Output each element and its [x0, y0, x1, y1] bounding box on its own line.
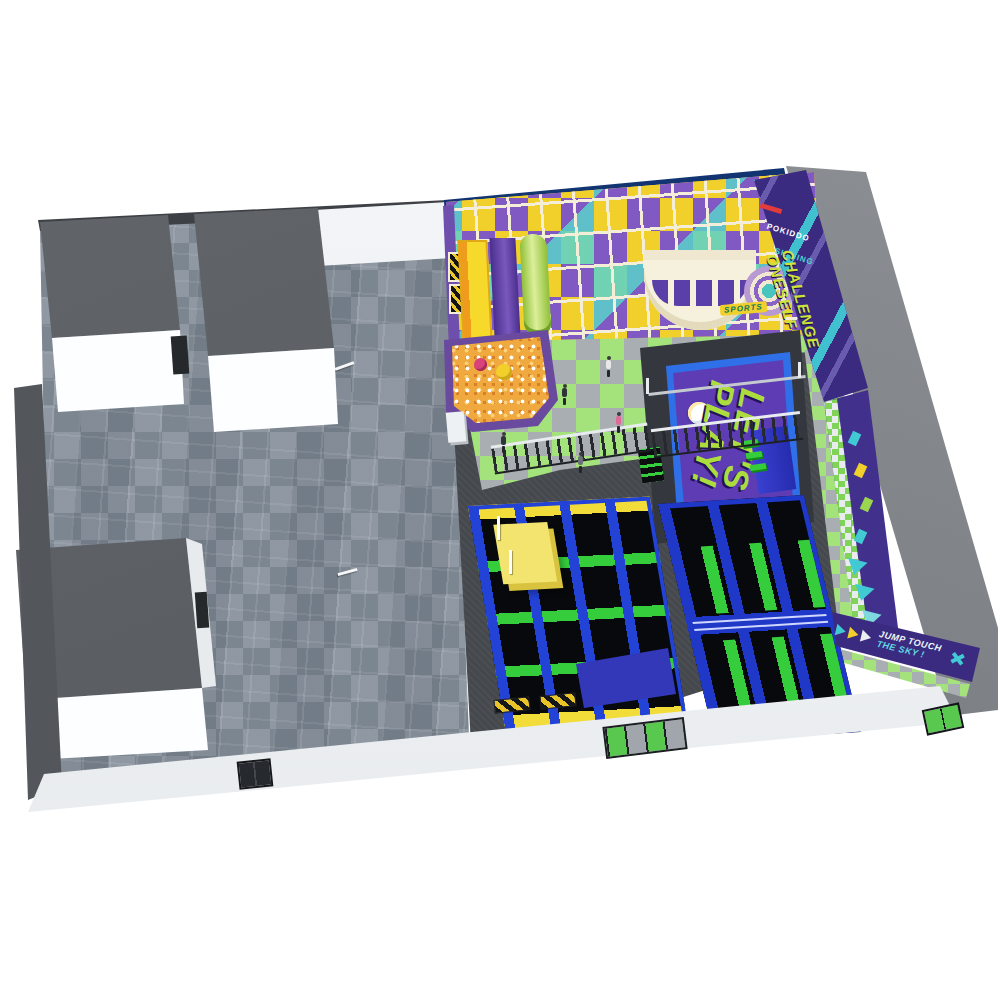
big-yellow-ball	[496, 364, 512, 380]
foam-pit-block	[493, 522, 557, 584]
trampoline-park-render: LET'S PLAY! LET'S SPORTS LET'S PLAY!	[0, 0, 1000, 1000]
person-figure	[578, 452, 584, 468]
chevron-right-icon	[835, 624, 848, 638]
wave-slide-purple	[489, 238, 520, 338]
person-figure	[606, 356, 612, 372]
chevron-right-icon	[847, 627, 860, 641]
jump-wall-text: JUMP TOUCH THE SKY !	[876, 630, 943, 664]
chevron-right-icon	[860, 630, 873, 644]
person-figure	[501, 432, 507, 448]
wave-slide-yellow	[457, 240, 492, 340]
carousel-band	[652, 280, 748, 306]
room-doorway	[195, 592, 209, 629]
person-figure	[562, 384, 568, 400]
bench	[446, 411, 467, 442]
person-figure	[616, 412, 622, 428]
lane-stripes	[674, 540, 826, 615]
white-post	[497, 516, 500, 540]
big-pink-ball	[474, 358, 487, 371]
sky-logo-icon	[947, 650, 968, 668]
tube-slide	[519, 234, 551, 336]
net-post	[798, 362, 801, 378]
net-post	[646, 378, 649, 394]
entrance-door-dark	[237, 758, 274, 789]
white-post	[509, 550, 512, 574]
room-doorway	[171, 335, 190, 374]
